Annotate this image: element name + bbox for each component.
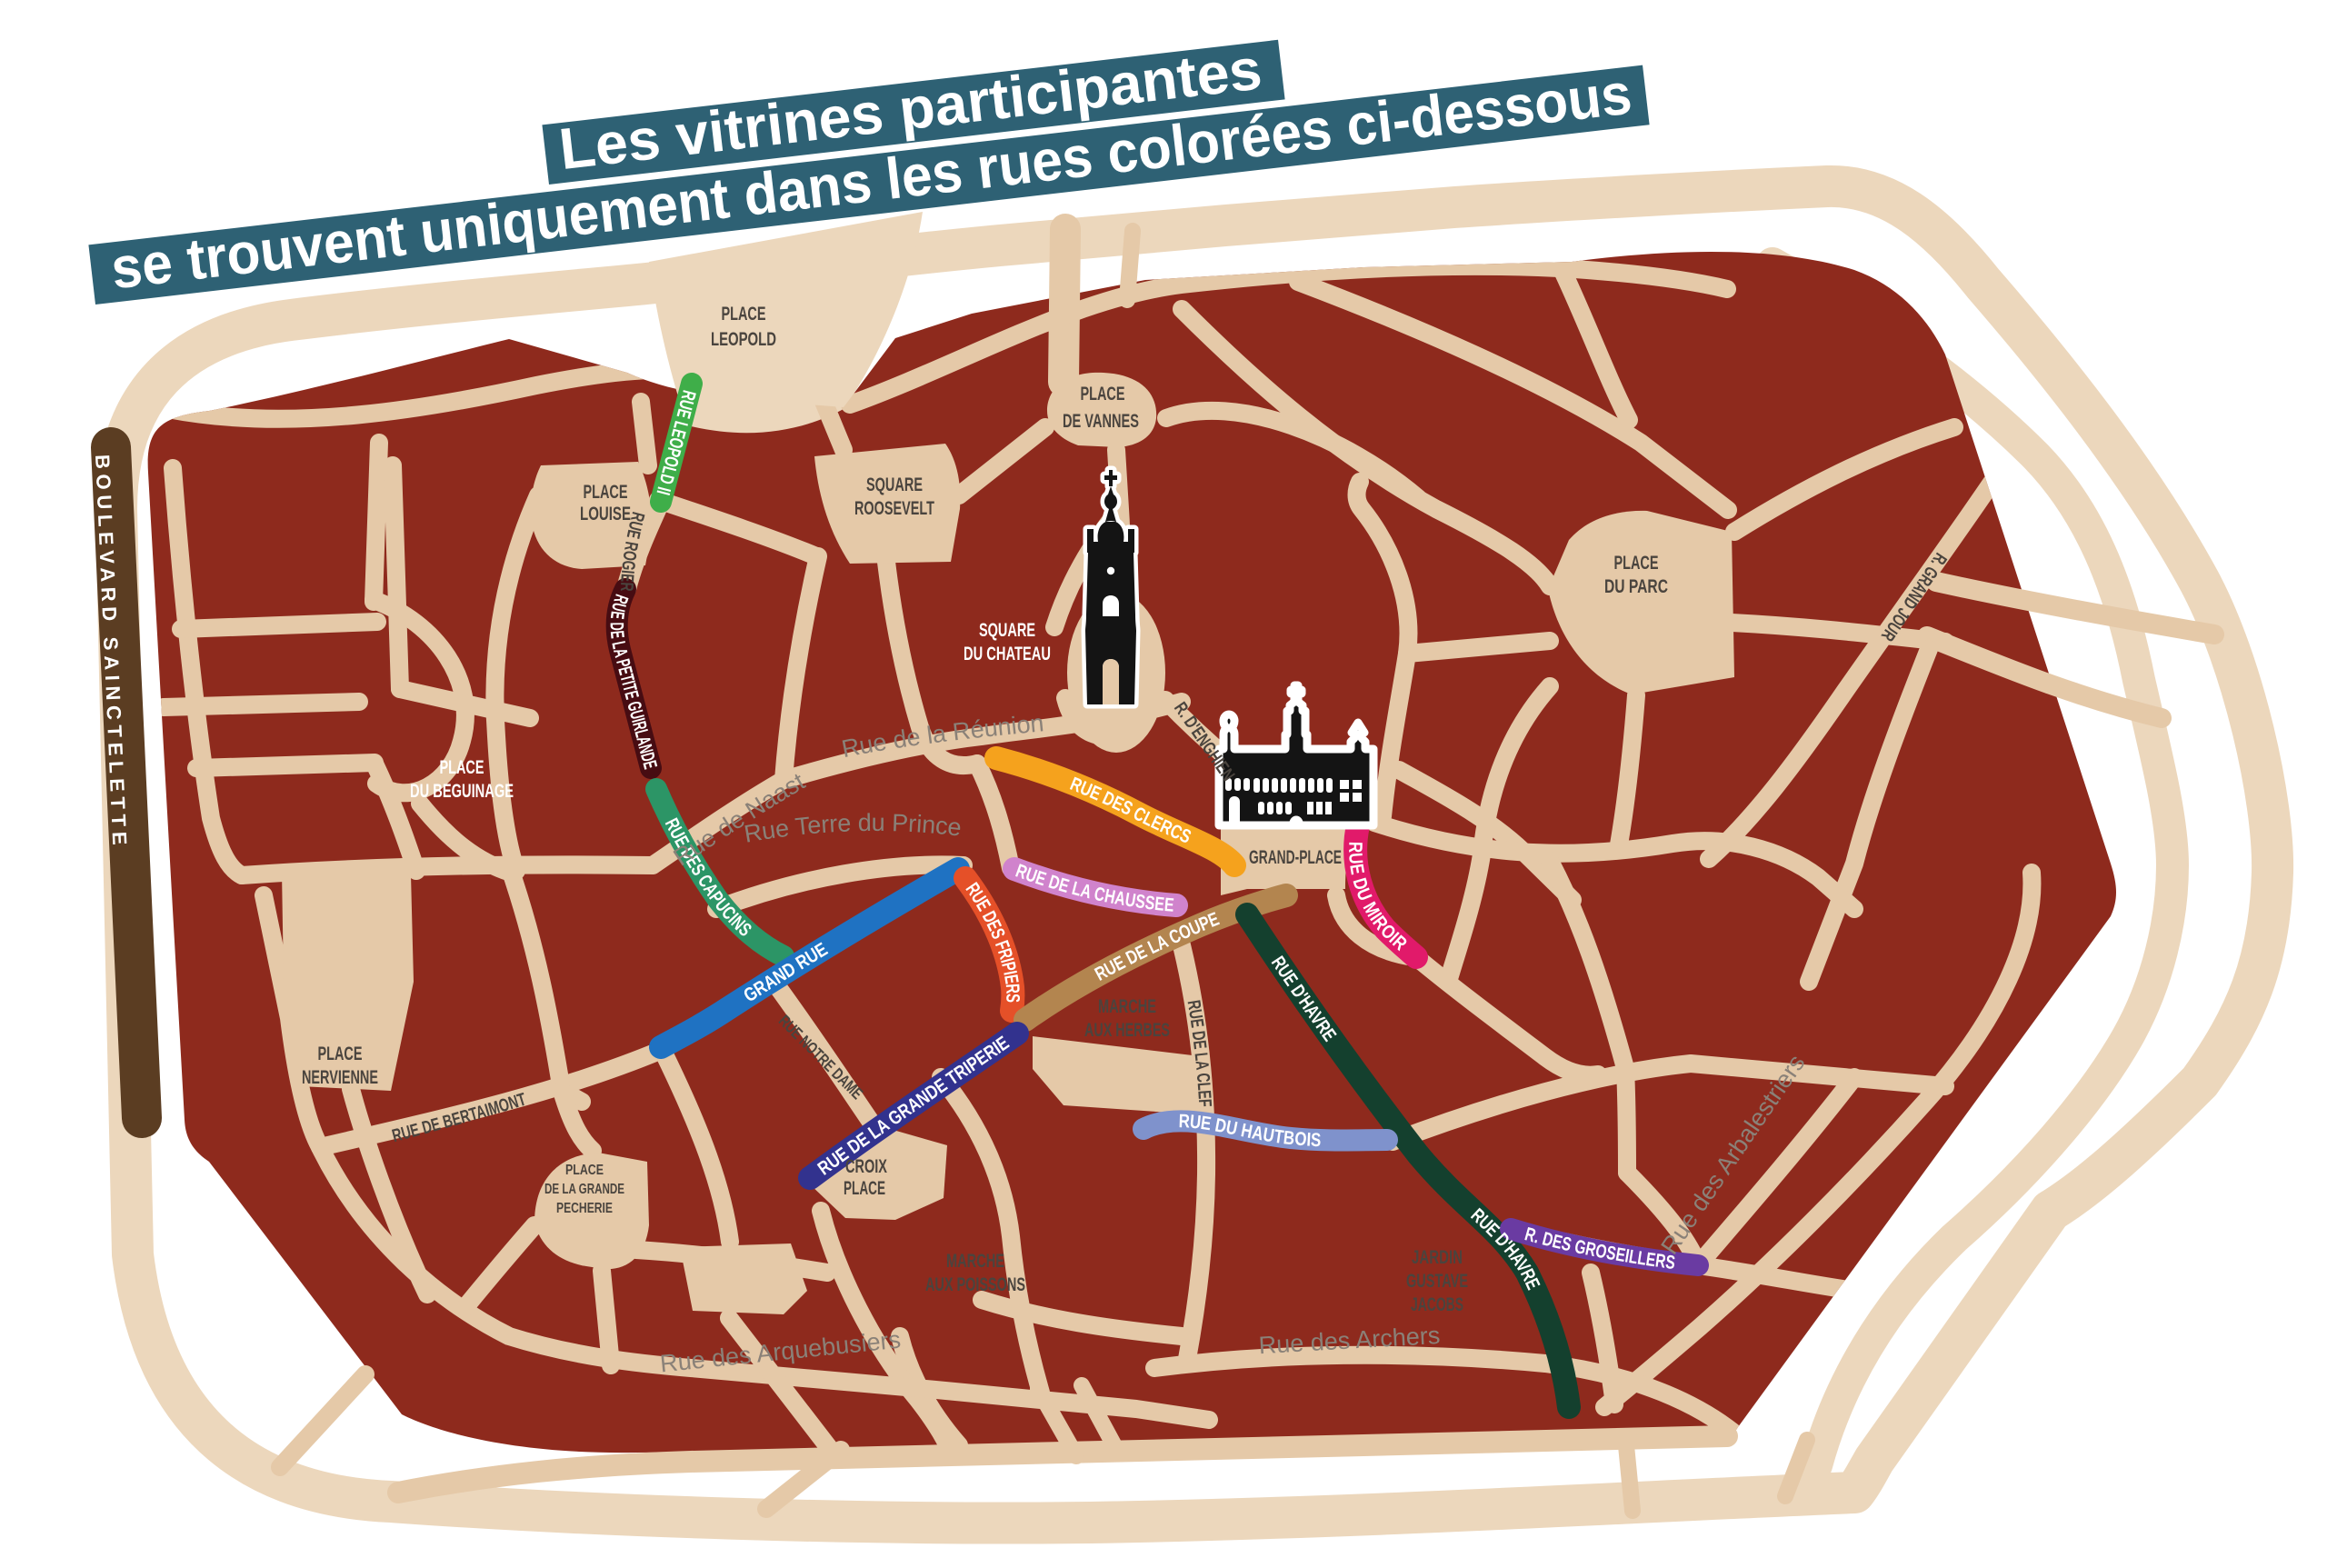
svg-text:MARCHE: MARCHE (1098, 996, 1156, 1017)
svg-text:DU BEGUINAGE: DU BEGUINAGE (410, 781, 514, 802)
svg-text:PLACE: PLACE (1081, 384, 1125, 404)
svg-text:AUX HERBES: AUX HERBES (1084, 1020, 1170, 1041)
svg-text:GRAND-PLACE: GRAND-PLACE (1249, 847, 1342, 868)
svg-text:DU PARC: DU PARC (1604, 576, 1668, 597)
svg-text:LOUISE: LOUISE (580, 504, 631, 524)
svg-text:ROOSEVELT: ROOSEVELT (854, 498, 934, 519)
svg-text:PLACE: PLACE (1614, 553, 1659, 574)
svg-text:DE LA GRANDE: DE LA GRANDE (544, 1182, 624, 1197)
svg-text:PLACE: PLACE (565, 1163, 604, 1178)
svg-text:DU CHATEAU: DU CHATEAU (964, 644, 1051, 664)
svg-text:LEOPOLD: LEOPOLD (711, 329, 776, 350)
svg-text:PLACE: PLACE (440, 757, 484, 778)
svg-text:PLACE: PLACE (584, 482, 628, 503)
svg-text:GUSTAVE: GUSTAVE (1406, 1271, 1468, 1292)
svg-text:AUX POISSONS: AUX POISSONS (925, 1274, 1025, 1295)
svg-text:NERVIENNE: NERVIENNE (302, 1067, 378, 1088)
svg-text:JARDIN: JARDIN (1412, 1247, 1463, 1268)
svg-text:SQUARE: SQUARE (866, 474, 923, 495)
svg-text:PECHERIE: PECHERIE (556, 1201, 613, 1216)
svg-text:PLACE: PLACE (722, 304, 766, 325)
svg-text:JACOBS: JACOBS (1411, 1294, 1463, 1315)
svg-text:DE VANNES: DE VANNES (1063, 411, 1139, 432)
svg-text:SQUARE: SQUARE (979, 620, 1035, 641)
svg-text:CROIX: CROIX (845, 1156, 887, 1177)
svg-text:PLACE: PLACE (844, 1178, 885, 1199)
svg-text:MARCHE: MARCHE (946, 1251, 1004, 1272)
svg-text:PLACE: PLACE (318, 1044, 363, 1064)
